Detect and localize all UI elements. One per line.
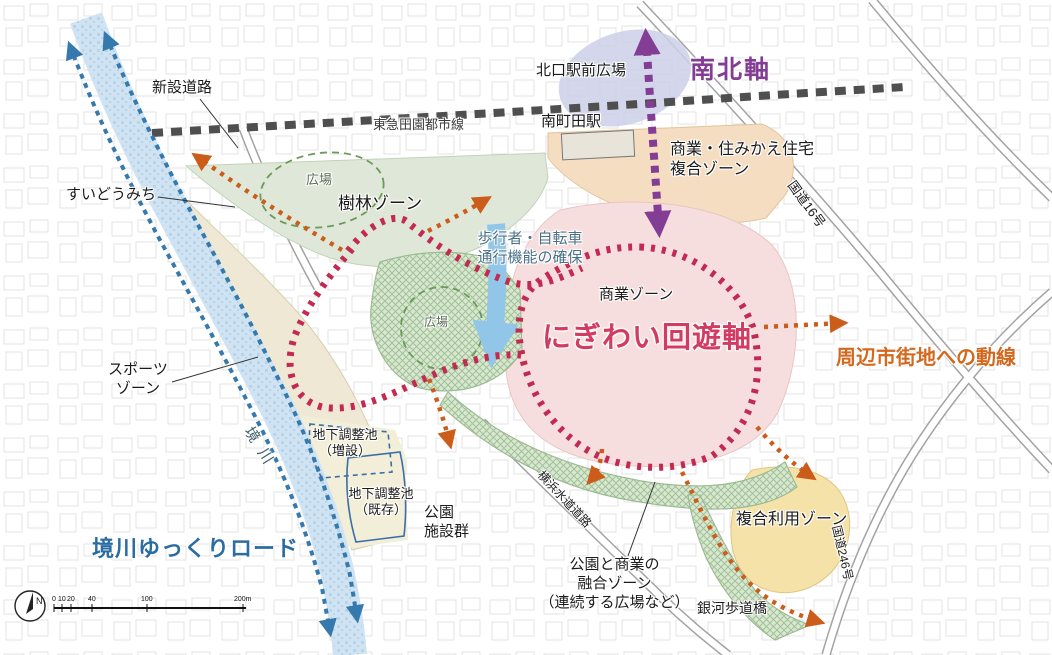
rail-line-label: 東急田園都市線 [373, 117, 464, 133]
svg-text:N: N [36, 596, 43, 606]
jurin-zone-label: 樹林ゾーン [338, 193, 422, 214]
mixed-zone-label: 商業・住みかえ住宅 複合ゾーン [670, 140, 814, 180]
new-road-label: 新設道路 [152, 79, 212, 98]
svg-text:100: 100 [141, 596, 153, 603]
svg-text:20: 20 [67, 596, 75, 603]
nigiwai-axis-label: にぎわい回遊軸 [542, 320, 752, 356]
park-facilities-label: 公園 施設群 [424, 504, 469, 542]
north-south-axis-label: 南北軸 [690, 55, 771, 86]
svg-text:0: 0 [52, 596, 56, 603]
planning-map: N 0 10 20 40 100 200m 北口駅前広場 南北軸 東急田園都市線… [0, 0, 1052, 655]
station-plaza-label: 北口駅前広場 [536, 62, 626, 81]
compass: N [15, 591, 45, 621]
fusion-zone-label: 公園と商業の 融合ゾーン （連続する広場など） [532, 556, 697, 612]
slow-road-label: 境川ゆっくりロード [92, 535, 299, 563]
sports-zone-label: スポーツ ゾーン [96, 361, 180, 399]
pond-existing-label: 地下調整池 （既存） [336, 486, 426, 519]
suido-michi-label: すいどうみち [66, 186, 156, 205]
commercial-zone-label: 商業ゾーン [599, 286, 673, 305]
svg-text:10: 10 [58, 596, 66, 603]
station-building [561, 130, 634, 160]
plaza-upper-label: 広場 [306, 172, 332, 188]
pond-expansion-label: 地下調整池 （増設） [300, 427, 390, 460]
svg-text:200m: 200m [234, 596, 252, 603]
station-label: 南町田駅 [541, 113, 601, 132]
pedestrian-note: 歩行者・自転車 通行機能の確保 [455, 230, 605, 268]
surrounding-flow-label: 周辺市街地への動線 [836, 346, 1016, 371]
galaxy-bridge-label: 銀河歩道橋 [697, 600, 767, 618]
plaza-lower-label: 広場 [424, 315, 448, 330]
svg-text:40: 40 [88, 596, 96, 603]
